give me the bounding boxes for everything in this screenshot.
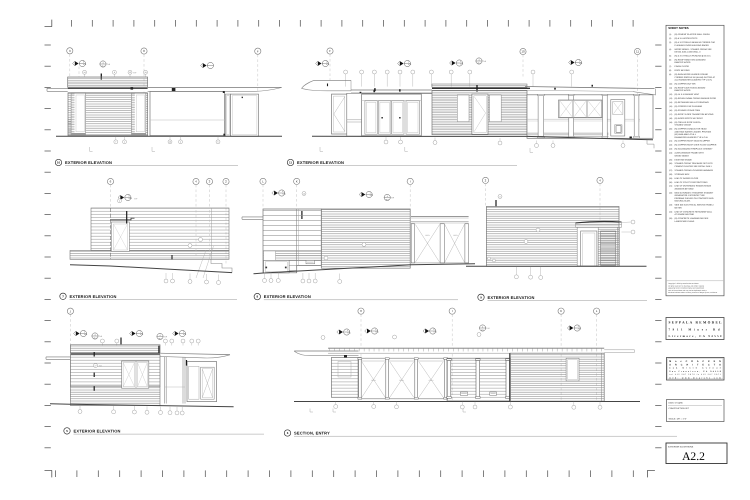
svg-text:(N) COPPER CAP FLASHING: (N) COPPER CAP FLASHING [675, 105, 703, 108]
svg-text:NEW AUTOMATIC TRANSFER STANDBY: NEW AUTOMATIC TRANSFER STANDBY [675, 191, 714, 194]
svg-text:(30): (30) [669, 181, 673, 184]
svg-text:K: K [296, 180, 298, 184]
svg-text:(33): (33) [669, 204, 673, 207]
svg-text:H: H [360, 309, 362, 313]
svg-text:PAINTED WOOD: PAINTED WOOD [675, 61, 691, 64]
svg-text:(N) 6 X 6 WOOD POSTS: (N) 6 X 6 WOOD POSTS [675, 37, 698, 40]
svg-text:(N) COPPER ROOF SEAM SCUPPER: (N) COPPER ROOF SEAM SCUPPER [675, 140, 711, 143]
svg-text:AT GRADE BEYOND: AT GRADE BEYOND [675, 213, 695, 216]
svg-text:STAINED CEDAR LOUVERED AWNINGS: STAINED CEDAR LOUVERED AWNINGS [675, 169, 714, 172]
svg-text:15: 15 [129, 71, 131, 74]
svg-text:10: 10 [521, 50, 525, 54]
svg-text:(32): (32) [669, 191, 673, 194]
svg-text:11: 11 [636, 50, 639, 54]
svg-text:GENERATOR. EXTERIOR TYPE: GENERATOR. EXTERIOR TYPE [675, 194, 706, 197]
svg-text:(N) STAINED CEDAR TRIM: (N) STAINED CEDAR TRIM [675, 109, 701, 112]
svg-text:(21): (21) [669, 140, 673, 143]
svg-text:OPEN: OPEN [425, 234, 431, 237]
svg-text:4: 4 [347, 329, 348, 332]
svg-text:4: 4 [119, 200, 120, 203]
svg-text:8: 8 [129, 195, 130, 198]
svg-text:(19): (19) [669, 121, 673, 124]
svg-text:11: 11 [326, 61, 328, 64]
svg-text:3: 3 [433, 328, 434, 331]
svg-text:4: 4 [95, 333, 96, 336]
svg-text:METER: METER [675, 206, 683, 209]
svg-text:FINISH FLOOR: FINISH FLOOR [675, 65, 690, 68]
svg-text:414 Ninth Avenue: 414 Ninth Avenue [669, 367, 721, 370]
svg-text:(N) COPPER ROOF OVER FLOW SCUP: (N) COPPER ROOF OVER FLOW SCUPPER [675, 144, 717, 147]
svg-text:6: 6 [579, 60, 580, 63]
svg-text:(N) 4 X 8 TRELLIS BEAM W/ COPP: (N) 4 X 8 TRELLIS BEAM W/ COPPER CAP [675, 41, 716, 44]
svg-text:(23): (23) [669, 148, 673, 151]
svg-text:Livermore, CA 94550: Livermore, CA 94550 [669, 334, 723, 338]
svg-text:4: 4 [387, 195, 388, 198]
svg-text:(24): (24) [669, 152, 673, 155]
svg-text:(12): (12) [669, 93, 673, 96]
svg-text:(N) 14 X 6 GARAGE VENT: (N) 14 X 6 GARAGE VENT [675, 93, 700, 96]
svg-text:(25): (25) [669, 158, 673, 161]
svg-text:1: 1 [375, 328, 376, 331]
svg-text:3: 3 [183, 331, 184, 334]
svg-text:(3): (3) [669, 41, 672, 44]
svg-text:EXTERIOR ELEVATION: EXTERIOR ELEVATION [297, 160, 344, 165]
svg-text:(15): (15) [669, 105, 673, 108]
svg-text:(N) RAIN WATER LEADER: ROUND: (N) RAIN WATER LEADER: ROUND [675, 73, 709, 76]
svg-text:F: F [329, 49, 331, 53]
svg-text:5: 5 [218, 141, 219, 144]
svg-text:(N) CEMENT PLASTER WALL FINISH: (N) CEMENT PLASTER WALL FINISH [675, 33, 711, 36]
svg-text:(N) COPPER CONDUCTOR HEAD: (N) COPPER CONDUCTOR HEAD [675, 128, 708, 131]
svg-text:LINE OF RAISED FLOOR: LINE OF RAISED FLOOR [675, 177, 699, 180]
svg-text:13: 13 [145, 71, 147, 74]
svg-text:(26): (26) [669, 162, 673, 165]
svg-text:1: 1 [460, 60, 461, 63]
svg-text:7: 7 [115, 141, 116, 144]
svg-text:EXTERIOR ELEVATION: EXTERIOR ELEVATION [65, 160, 112, 165]
svg-text:SHEET NOTES: SHEET NOTES [668, 26, 688, 30]
svg-text:1: 1 [140, 331, 141, 334]
svg-text:(31): (31) [669, 185, 673, 188]
svg-text:9: 9 [83, 61, 84, 64]
svg-text:CONSTRUCTION SET: CONSTRUCTION SET [669, 407, 690, 410]
svg-text:16: 16 [303, 192, 305, 195]
svg-text:PAINTED WOOD: PAINTED WOOD [675, 89, 691, 92]
svg-text:(2): (2) [669, 37, 672, 40]
svg-text:WOOD SIDING - STAINED CEDAR SE: WOOD SIDING - STAINED CEDAR SEE [675, 48, 713, 51]
svg-text:16: 16 [169, 141, 171, 144]
svg-text:ALIGN WINDOW FRAME WITH: ALIGN WINDOW FRAME WITH [675, 152, 705, 155]
svg-text:AND RAIN WATER LEADER. PROVIDE: AND RAIN WATER LEADER. PROVIDE [675, 130, 712, 133]
svg-text:DETAIL 3/A5.1 AND WALL 3: DETAIL 3/A5.1 AND WALL 3 [675, 51, 702, 54]
svg-text:4: 4 [479, 58, 480, 61]
svg-text:4: 4 [180, 141, 181, 144]
svg-text:FLASHING OVER BUILDING PAPER: FLASHING OVER BUILDING PAPER [675, 44, 710, 47]
svg-text:EXTERIOR ELEVATION: EXTERIOR ELEVATION [264, 294, 311, 299]
svg-text:(35): (35) [669, 217, 673, 220]
svg-text:LINE OF STUCCO RESTRICTIONS: LINE OF STUCCO RESTRICTIONS [675, 181, 709, 184]
svg-text:COPPER PROFILE W/ (ALUM) GUTTE: COPPER PROFILE W/ (ALUM) GUTTER AT [675, 76, 716, 79]
svg-text:DATE: 07/14/06: DATE: 07/14/06 [669, 401, 684, 404]
svg-text:EXTERIOR ELEVATION: EXTERIOR ELEVATION [74, 428, 121, 433]
svg-text:(N) ROOF EAVE FASCIA BOARD: (N) ROOF EAVE FASCIA BOARD [675, 86, 706, 89]
svg-text:(22): (22) [669, 144, 673, 147]
svg-text:LANDSCAPE PLANS: LANDSCAPE PLANS [675, 220, 695, 223]
svg-text:NATURAL BLDG.: NATURAL BLDG. [675, 200, 691, 203]
svg-text:9: 9 [114, 71, 115, 74]
svg-text:(N) CONCRETE LANDING PAD SEE: (N) CONCRETE LANDING PAD SEE [675, 217, 709, 220]
svg-text:(29): (29) [669, 177, 673, 180]
svg-text:EXTERIOR ELEVATION: EXTERIOR ELEVATION [488, 295, 535, 300]
svg-text:(28): (28) [669, 173, 673, 176]
svg-text:14: 14 [84, 71, 86, 74]
svg-text:EXTERIOR ELEVATION: EXTERIOR ELEVATION [70, 294, 117, 299]
svg-text:AWNINGS BEYOND: AWNINGS BEYOND [675, 187, 694, 190]
svg-text:CEMENT PLASTER SEE DETAIL 2/A5: CEMENT PLASTER SEE DETAIL 2/A5.1 [675, 165, 713, 168]
svg-text:(N) WOOD POSTS W/ FRONT: (N) WOOD POSTS W/ FRONT [675, 117, 704, 120]
svg-text:(W) AVAILABLE AT ALL: (W) AVAILABLE AT ALL [675, 133, 697, 136]
svg-text:San Francisco, CA 94118: San Francisco, CA 94118 [669, 370, 721, 373]
svg-text:OPEN: OPEN [371, 379, 377, 382]
svg-text:(N) ROUGH SAWN CEDAR GARAGE DO: (N) ROUGH SAWN CEDAR GARAGE DOOR [675, 97, 717, 100]
svg-text:2: 2 [578, 325, 579, 328]
svg-text:LINE OF CONCRETE RETAINING WAL: LINE OF CONCRETE RETAINING WALL [675, 210, 714, 213]
svg-text:LINE OF MOTORIZED ROMAN SHADE: LINE OF MOTORIZED ROMAN SHADE [675, 185, 712, 188]
svg-text:OPEN: OPEN [399, 379, 405, 382]
svg-text:ALL RAINWATER LEADERS TYP U.O: ALL RAINWATER LEADERS TYP U.O.N. [675, 79, 713, 82]
svg-text:(18): (18) [669, 117, 673, 120]
svg-text:(27): (27) [669, 169, 673, 172]
svg-text:(8): (8) [669, 69, 672, 72]
svg-text:SECTION, ENTRY: SECTION, ENTRY [294, 431, 330, 436]
svg-text:STORAGE BOX: STORAGE BOX [675, 173, 690, 176]
svg-text:10: 10 [57, 161, 61, 165]
svg-text:WOOD SIDING: WOOD SIDING [675, 154, 690, 157]
svg-text:4: 4 [103, 61, 104, 64]
svg-text:(6): (6) [669, 58, 672, 61]
svg-text:SEPPALA REMODEL: SEPPALA REMODEL [669, 320, 723, 324]
svg-text:K: K [560, 309, 562, 313]
svg-text:8: 8 [500, 195, 501, 198]
svg-text:tel 415 587 5970 fx 415 587 59: tel 415 587 5970 fx 415 587 5971 [669, 373, 721, 376]
svg-text:4: 4 [482, 325, 483, 328]
svg-text:(14): (14) [669, 101, 673, 104]
svg-text:2: 2 [408, 61, 409, 64]
svg-text:(9): (9) [669, 73, 672, 76]
svg-text:(20): (20) [669, 128, 673, 131]
svg-text:SIDE (W) ELECTRICAL SERVICE PA: SIDE (W) ELECTRICAL SERVICE PANEL / [675, 204, 715, 207]
svg-text:11: 11 [289, 161, 292, 165]
svg-text:(34): (34) [669, 210, 673, 213]
svg-text:(N) GALVANIZED FIREPLACE CHIMN: (N) GALVANIZED FIREPLACE CHIMNEY [675, 148, 714, 151]
svg-text:PROPANE FUELED ON CONCRETE PAD: PROPANE FUELED ON CONCRETE PAD. [675, 197, 715, 200]
svg-text:4: 4 [160, 334, 161, 337]
svg-text:EXTERIOR ELEVATIONS: EXTERIOR ELEVATIONS [668, 446, 694, 449]
svg-text:(5): (5) [669, 55, 672, 58]
svg-text:(N) TRELLIS ROOF FASCIA: (N) TRELLIS ROOF FASCIA [675, 121, 702, 124]
svg-text:7911 Mines Rd: 7911 Mines Rd [669, 327, 720, 331]
svg-text:(N) ROOF RAKE FASCIA BOARD: (N) ROOF RAKE FASCIA BOARD [675, 58, 707, 61]
svg-text:(N) COPPER GUTTER: (N) COPPER GUTTER [675, 83, 697, 86]
svg-text:(1): (1) [669, 33, 672, 36]
svg-text:STAINED CEDAR: STAINED CEDAR [675, 124, 692, 127]
svg-text:2: 2 [124, 141, 125, 144]
svg-text:EXISTING GRADE: EXISTING GRADE [675, 158, 693, 161]
svg-text:(N) RETAINING WALL AT DRIVEWAY: (N) RETAINING WALL AT DRIVEWAY [675, 101, 710, 104]
svg-text:ROOF BEYOND: ROOF BEYOND [675, 69, 691, 72]
svg-text:(N) 3 X 6 TRELLIS PURLINS @ 36: (N) 3 X 6 TRELLIS PURLINS @ 36 O.C. [675, 55, 712, 58]
svg-text:SCALE: 1/8" = 1'-0": SCALE: 1/8" = 1'-0" [669, 417, 687, 420]
svg-text:OPEN: OPEN [453, 234, 459, 237]
svg-text:(13): (13) [669, 97, 673, 100]
svg-text:RAINWATER LEADERS TYP U.O.N.: RAINWATER LEADERS TYP U.O.N. [675, 136, 709, 139]
svg-text:F: F [257, 49, 259, 53]
svg-text:(17): (17) [669, 113, 673, 116]
svg-text:2: 2 [370, 192, 371, 195]
svg-text:STAINED CEDAR TRIM BASE SET IN: STAINED CEDAR TRIM BASE SET INTO [675, 162, 713, 165]
svg-text:8: 8 [282, 190, 283, 193]
svg-text:A2.2: A2.2 [682, 450, 705, 463]
svg-text:(7): (7) [669, 65, 672, 68]
svg-text:(11): (11) [669, 86, 673, 89]
svg-text:OPEN: OPEN [429, 379, 435, 382]
svg-text:(10): (10) [669, 83, 673, 86]
svg-text:(16): (16) [669, 109, 673, 112]
svg-text:4: 4 [84, 331, 85, 334]
svg-text:27: 27 [95, 364, 97, 367]
svg-text:(4): (4) [669, 48, 672, 51]
svg-text:(N) ROOF SLOPE TRANSITION BEYO: (N) ROOF SLOPE TRANSITION BEYOND [675, 113, 714, 116]
